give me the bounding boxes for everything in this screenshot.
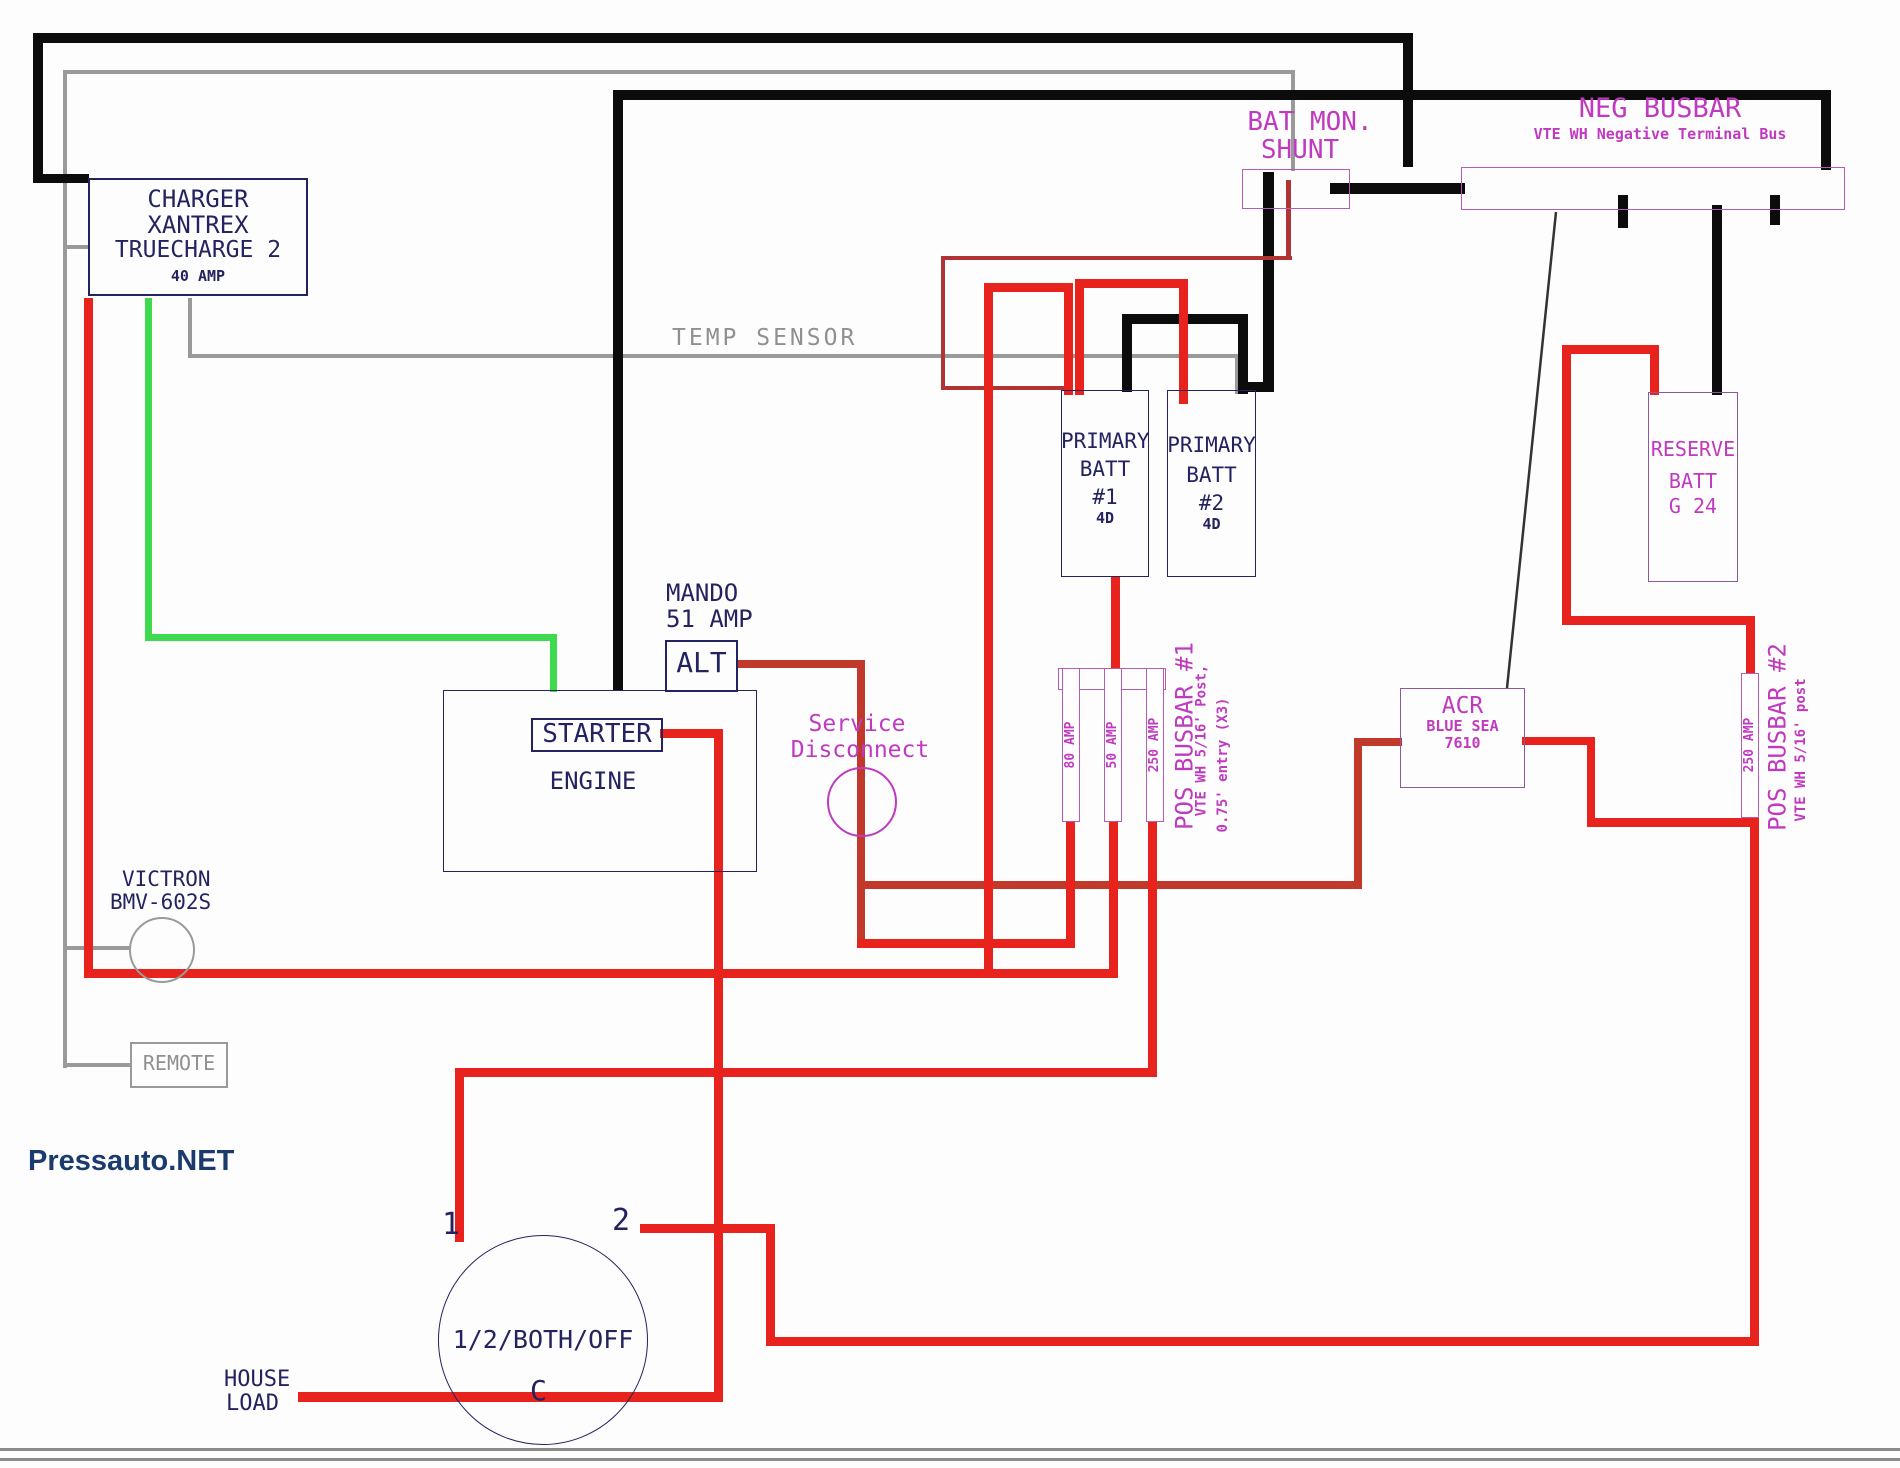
shunt-sense-drop2-wire — [941, 256, 945, 390]
batt2-arch-top-wire — [1075, 279, 1188, 288]
house-load-line2: LOAD — [226, 1392, 279, 1416]
switch2-drop-wire — [766, 1224, 775, 1346]
posbus2-sub1: VTE WH 5/16' post — [1794, 650, 1810, 850]
fuse-250amp1-label: 250 AMP — [1148, 670, 1162, 820]
shunt-box — [1242, 169, 1350, 209]
charger-pos-run-wire — [84, 969, 1118, 978]
neg-busbar-subtitle: VTE WH Negative Terminal Bus — [1480, 126, 1840, 143]
batt1-pos-stub-wire — [1064, 283, 1073, 395]
batt1-box — [1061, 390, 1149, 577]
posbus2-title: POS BUSBAR #2 — [1765, 630, 1791, 845]
reserve-pos-top-wire — [1562, 345, 1659, 354]
starter-label: STARTER — [531, 720, 663, 749]
alt-fuse80-run-wire — [857, 939, 1075, 948]
fuse-80amp-label: 80 AMP — [1064, 670, 1078, 820]
switch-terminal-1: 1 — [442, 1208, 460, 1241]
charger-green-drop-wire — [145, 298, 152, 641]
batt1-line1: PRIMARY — [1061, 430, 1149, 453]
acr-line3: 7610 — [1400, 735, 1525, 752]
acr-line2: BLUE SEA — [1400, 718, 1525, 735]
watermark: Pressauto.NET — [28, 1146, 234, 1178]
switch-terminal-2: 2 — [612, 1204, 630, 1237]
posbus1-sub1: VTE WH 5/16' Post, — [1195, 641, 1212, 841]
charger-pos-drop-wire — [84, 298, 93, 978]
batt2-line2: BATT — [1167, 464, 1256, 487]
batt1-busbar-feed-wire — [1111, 577, 1120, 672]
house-load-line1: HOUSE — [224, 1368, 290, 1392]
acr-right-stub-wire — [1522, 737, 1595, 745]
service-disconnect-label-1: Service — [787, 712, 927, 737]
acr-left-stub-wire — [1354, 738, 1402, 746]
battery-switch-label: 1/2/BOTH/OFF — [433, 1326, 653, 1354]
charger-green-run-wire — [145, 634, 557, 641]
alt-label: ALT — [665, 648, 738, 679]
batt1-line3: #1 — [1061, 486, 1149, 509]
batt2-arch-left-wire — [1075, 283, 1084, 395]
reserve-posbus2-run-wire — [1562, 616, 1752, 625]
bottom-run-wire — [766, 1337, 1759, 1346]
switch-terminal-c: C — [530, 1376, 547, 1407]
alt-note2: 51 AMP — [666, 606, 753, 632]
neg-busbar-title: NEG BUSBAR — [1520, 94, 1800, 124]
batt1-line2: BATT — [1061, 458, 1149, 481]
reserve-line3: G 24 — [1648, 495, 1738, 517]
service-disconnect-label-2: Disconnect — [780, 738, 940, 763]
engine-label: ENGINE — [443, 768, 743, 794]
fuse80-riser-wire — [1066, 822, 1075, 948]
acr-posbus2-run-wire — [1587, 818, 1754, 827]
fuse-50amp-label: 50 AMP — [1106, 670, 1120, 820]
batt1-arch-top-wire — [984, 283, 1073, 292]
batt2-line3: #2 — [1167, 492, 1256, 515]
charger-line2: XANTREX — [88, 212, 308, 238]
acr-line1: ACR — [1400, 694, 1525, 719]
posbus1-sub2: 0.75' entry (X3) — [1216, 665, 1232, 865]
reserve-pos-drop-wire — [1562, 345, 1571, 625]
charger-line1: CHARGER — [88, 186, 308, 212]
victron-line1: VICTRON — [122, 868, 211, 891]
shunt-sense-batt1-wire — [941, 386, 1069, 390]
service-disconnect-circle — [827, 767, 897, 837]
reserve-line1: RESERVE — [1648, 438, 1738, 460]
acr-right-drop-wire — [1587, 737, 1595, 827]
wiring-diagram: CHARGER XANTREX TRUECHARGE 2 40 AMP TEMP… — [0, 0, 1900, 1468]
posbus2-top-stub-wire — [1746, 616, 1755, 678]
charger-line4: 40 AMP — [88, 268, 308, 285]
batt2-pos-stub-wire — [1179, 279, 1188, 404]
batt2-line4: 4D — [1167, 516, 1256, 533]
fuse50-riser-wire — [1109, 822, 1118, 978]
bat-mon-label-1: BAT MON. — [1230, 108, 1390, 137]
remote-label: REMOTE — [130, 1052, 228, 1074]
charger-line3: TRUECHARGE 2 — [88, 238, 308, 263]
acr-feed-riser-wire — [1354, 738, 1362, 887]
shunt-sense-run-wire — [941, 256, 1292, 260]
reserve-line2: BATT — [1648, 470, 1738, 492]
bat-mon-label-2: SHUNT — [1230, 136, 1370, 165]
switch2-run-wire — [640, 1224, 775, 1233]
victron-line2: BMV-602S — [110, 891, 211, 914]
temp-sensor-label: TEMP SENSOR — [672, 326, 857, 351]
switch1-run-wire — [455, 1068, 1157, 1077]
batt1-line4: 4D — [1061, 510, 1149, 527]
posbus2-drop-wire — [1750, 818, 1759, 1346]
neg-busbar-box — [1461, 167, 1845, 210]
alt-note1: MANDO — [666, 580, 738, 606]
batt1-arch-left-wire — [984, 287, 993, 977]
batt2-line1: PRIMARY — [1167, 434, 1256, 457]
alt-output-wire — [738, 660, 865, 668]
fuse250-riser-wire — [1148, 822, 1157, 1077]
fuse-250amp2-label: 250 AMP — [1743, 670, 1757, 820]
victron-circle — [129, 917, 195, 983]
charger-green-engine-wire — [550, 634, 557, 692]
